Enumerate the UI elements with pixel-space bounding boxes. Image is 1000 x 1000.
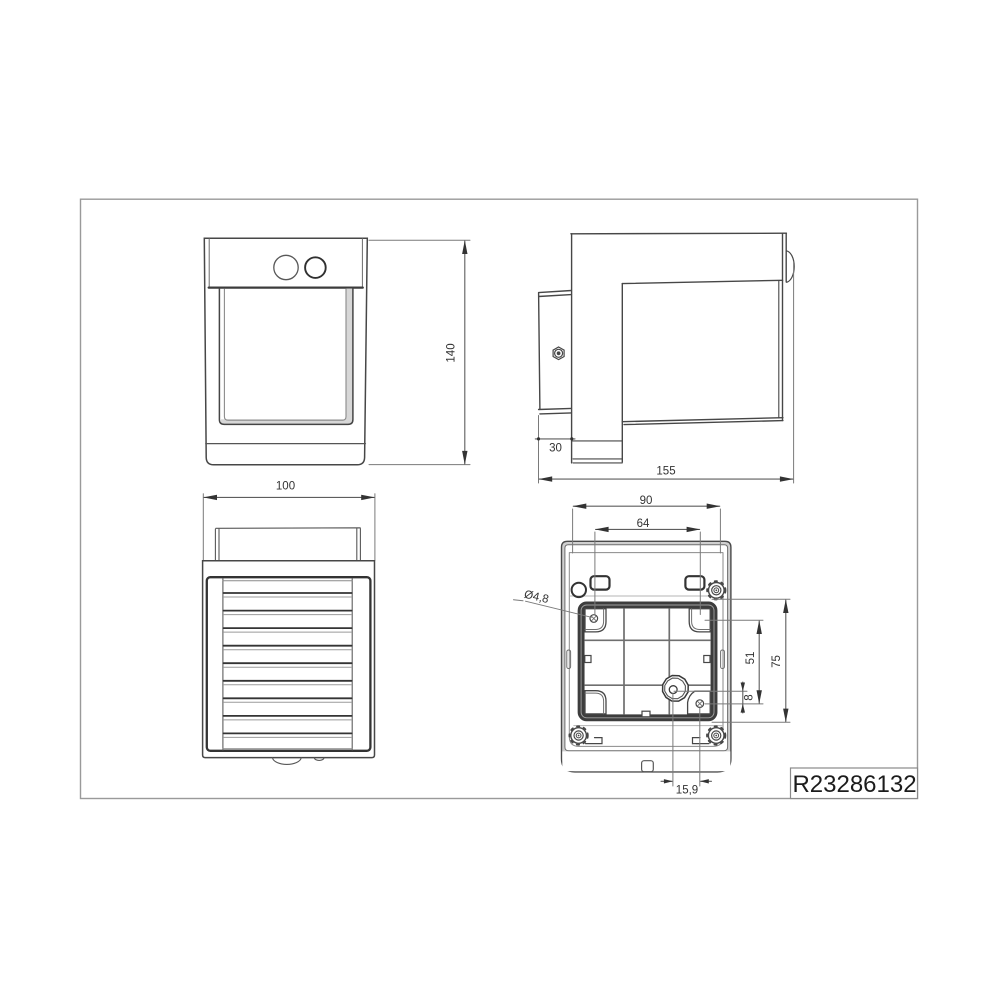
svg-text:R23286132: R23286132 (792, 771, 916, 798)
svg-text:51: 51 (745, 652, 757, 665)
svg-text:90: 90 (640, 495, 653, 507)
svg-text:75: 75 (771, 655, 783, 668)
svg-text:140: 140 (446, 343, 458, 362)
svg-text:30: 30 (549, 443, 562, 455)
svg-text:100: 100 (276, 481, 295, 493)
svg-text:155: 155 (656, 466, 675, 478)
svg-text:15,9: 15,9 (676, 785, 698, 797)
svg-text:64: 64 (637, 518, 650, 530)
svg-text:8: 8 (744, 694, 756, 700)
